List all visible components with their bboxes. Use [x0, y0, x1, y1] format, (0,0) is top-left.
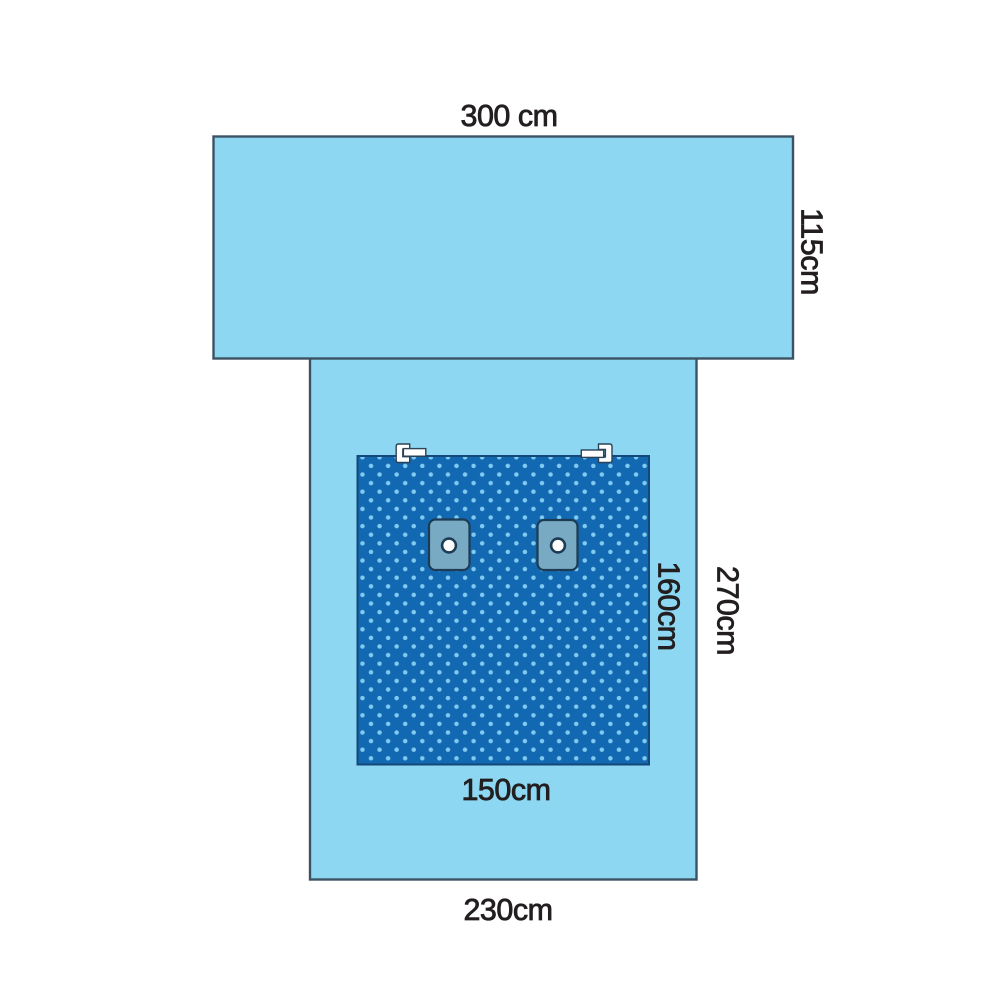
svg-text:270cm: 270cm — [711, 566, 745, 655]
svg-text:300 cm: 300 cm — [460, 99, 557, 133]
svg-text:230cm: 230cm — [463, 893, 552, 927]
svg-text:150cm: 150cm — [461, 773, 550, 807]
svg-text:115cm: 115cm — [795, 208, 829, 295]
svg-text:160cm: 160cm — [652, 561, 686, 650]
